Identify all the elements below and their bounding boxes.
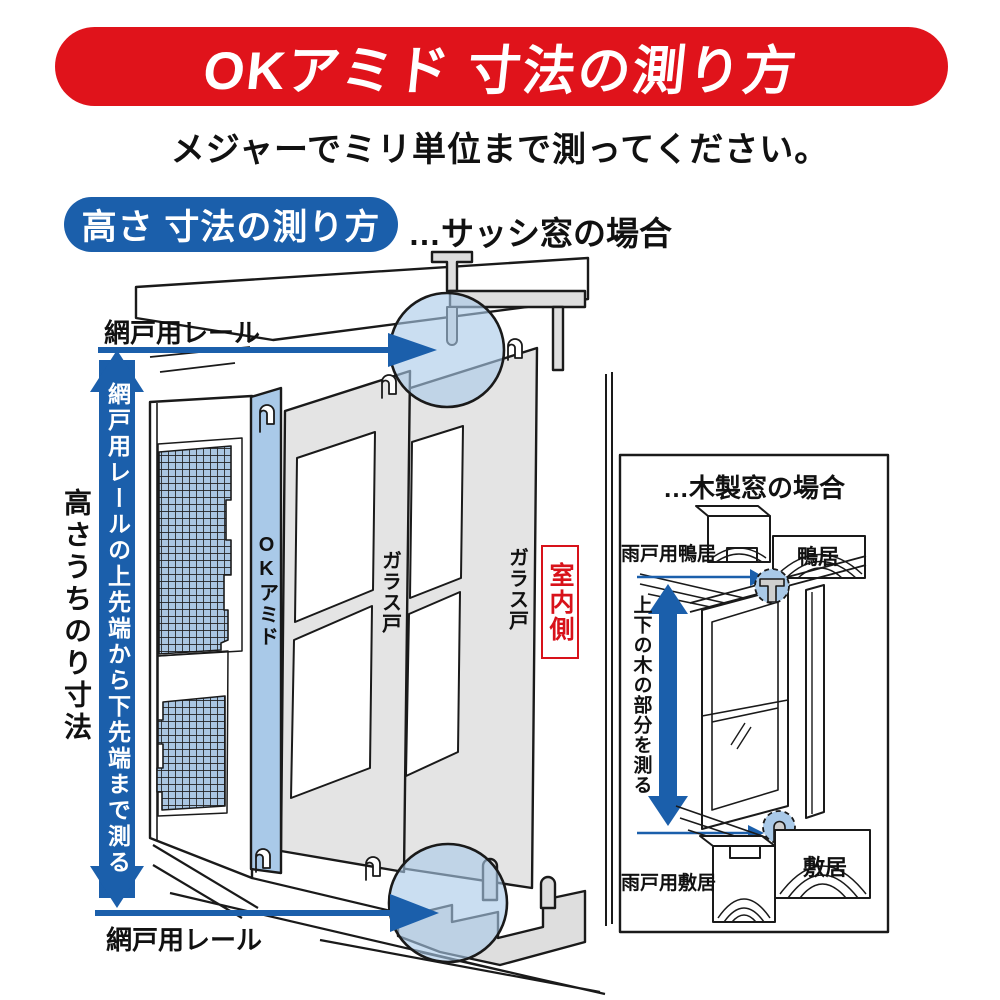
subtitle: メジャーでミリ単位まで測ってください。: [0, 122, 1000, 171]
section-badge-label: 高さ 寸法の測り方: [82, 199, 381, 250]
height-arrow-instruction: 網戸用レールの上先端から下先端まで測る: [101, 382, 135, 876]
title-banner: OKアミド 寸法の測り方: [55, 27, 948, 106]
kamoi-label: 鴨居: [797, 541, 839, 571]
glass-door-1-label: ガラス戸: [376, 550, 405, 634]
indoor-side-badge: 室内側: [541, 545, 579, 659]
page-title: OKアミド 寸法の測り方: [200, 29, 802, 105]
wooden-panel-title: …木製窓の場合: [620, 468, 888, 505]
sash-case-note: …サッシ窓の場合: [408, 207, 672, 255]
bottom-rail-pointer-line: [95, 910, 395, 916]
bottom-rail-label: 網戸用レール: [106, 920, 262, 957]
section-badge: 高さ 寸法の測り方: [64, 197, 398, 252]
wooden-window-drawing: [620, 455, 888, 932]
height-dimension-label: 高さうちのり寸法: [56, 488, 96, 768]
storm-door-shikii-label: 雨戸用敷居: [621, 868, 716, 895]
top-rail-label: 網戸用レール: [104, 313, 260, 350]
indoor-side-label: 室内側: [542, 562, 578, 643]
storm-door-kamoi-label: 雨戸用鴨居: [621, 539, 716, 566]
wood-measure-instruction: 上下の木の部分を測る: [628, 595, 655, 813]
screen-door-label: OKアミド: [253, 534, 282, 648]
glass-door-2-label: ガラス戸: [503, 547, 532, 631]
screen-mesh-upper: [159, 446, 231, 654]
right-jamb: [606, 372, 612, 926]
screen-mesh-lower: [157, 696, 225, 810]
shikii-label: 敷居: [803, 850, 847, 882]
instruction-poster: OKアミド 寸法の測り方 メジャーでミリ単位まで測ってください。 高さ 寸法の測…: [0, 0, 1000, 1000]
